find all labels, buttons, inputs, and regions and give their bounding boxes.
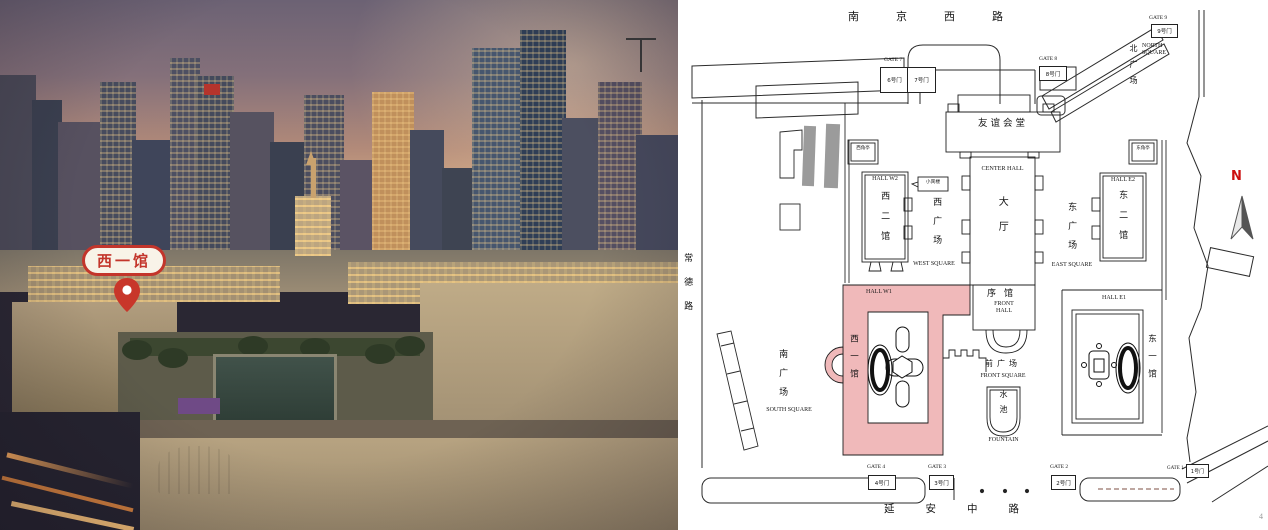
hall-w1-zh: 西一馆 — [849, 334, 859, 387]
gate9-box: 9号门 — [1151, 24, 1178, 38]
roads — [692, 10, 1268, 503]
gate9-label: GATE 9 — [1149, 15, 1167, 21]
front-square-zh: 前广场 — [977, 360, 1029, 369]
gate1-label: GATE 1 — [1167, 466, 1184, 472]
front-hall-zh: 序馆 — [973, 288, 1035, 298]
north-square-en: NORTH SQUARE — [1142, 43, 1180, 56]
gate7-label: GATE 7 — [884, 57, 902, 63]
south-square-en: SOUTH SQUARE — [755, 407, 823, 414]
friendship-hall-label: 友谊会堂 — [946, 119, 1060, 130]
hall-w1-en: HALL W1 — [866, 289, 892, 296]
compass-north-label: N — [1231, 170, 1242, 185]
front-square-en: FRONT SQUARE — [972, 373, 1034, 380]
aerial-photo: 西一馆 — [0, 0, 678, 530]
fountain-zh: 水池 — [998, 390, 1007, 420]
gate2-box: 2号门 — [1051, 475, 1076, 490]
center-hall-en: CENTER HALL — [970, 166, 1035, 173]
center-hall-zh: 大厅 — [996, 196, 1007, 246]
west-square-zh: 西广场 — [932, 197, 942, 254]
site-plan: 南京西路 常德路 延安中路 北广场 NORTH SQUARE 西广场 WEST … — [690, 0, 1268, 530]
page-number: 4 — [1259, 513, 1263, 522]
compass-icon — [1231, 196, 1253, 239]
street-changde-road: 常德路 — [683, 253, 693, 325]
gate1-box: 1号门 — [1186, 464, 1209, 478]
west-pavilion-label: 西角亭 — [848, 145, 878, 150]
hall-e1-zh: 东一馆 — [1147, 334, 1157, 387]
hall-e2-zh: 东二馆 — [1118, 190, 1128, 250]
guest-house-label: 小宾楼 — [919, 180, 947, 185]
east-square-en: EAST SQUARE — [1039, 262, 1105, 269]
gate3-label: GATE 3 — [928, 464, 946, 470]
gate4-box: 4号门 — [868, 475, 896, 490]
gate4-label: GATE 4 — [867, 464, 885, 470]
gate7-box-b: 7号门 — [907, 67, 936, 93]
gate8-label: GATE 8 — [1039, 56, 1057, 62]
hall-w1-marker-label: 西一馆 — [82, 245, 166, 276]
gate2-label: GATE 2 — [1050, 464, 1068, 470]
location-pin-icon — [114, 278, 140, 312]
gate8-box: 8号门 — [1039, 66, 1067, 81]
south-square-zh: 南广场 — [778, 349, 788, 406]
plan-linework — [690, 0, 1268, 530]
west-buildings — [780, 124, 840, 230]
west-square-en: WEST SQUARE — [901, 261, 967, 268]
front-hall-en: FRONT HALL — [987, 301, 1021, 314]
venue-location-figure: 西一馆 — [0, 0, 1268, 530]
hall-w2-zh: 西二馆 — [880, 191, 890, 251]
street-yanan-middle-road: 延安中路 — [884, 504, 1050, 516]
gate7-box-a: 6号门 — [880, 67, 909, 93]
hall-e2-en: HALL E2 — [1100, 177, 1146, 184]
gate3-box: 3号门 — [929, 475, 954, 490]
east-square-zh: 东广场 — [1067, 202, 1077, 259]
hall-w2-en: HALL W2 — [862, 176, 908, 183]
hall-e1-en: HALL E1 — [1102, 295, 1126, 302]
street-nanjing-west-road: 南京西路 — [848, 11, 1040, 23]
plan-buildings — [848, 95, 1162, 436]
north-square-zh: 北广场 — [1128, 44, 1137, 92]
fountain-en: FOUNTAIN — [976, 437, 1031, 444]
east-pavilion-label: 东角亭 — [1129, 145, 1157, 150]
